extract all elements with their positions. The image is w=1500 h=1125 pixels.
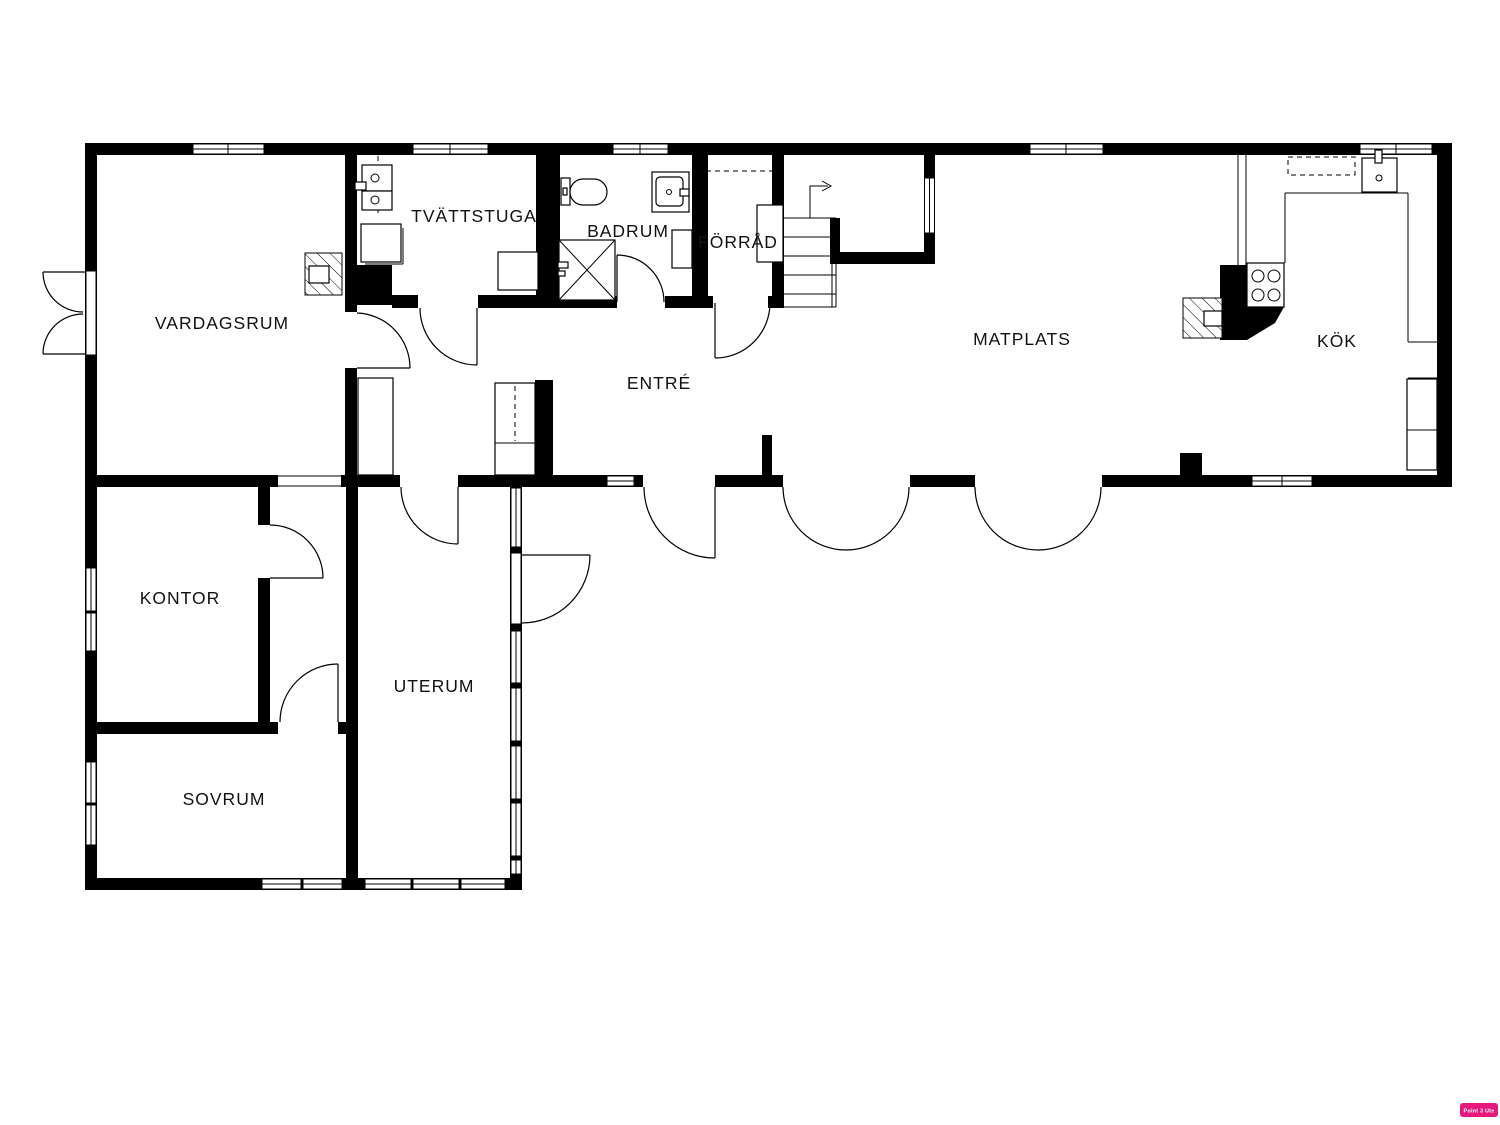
hall-closet xyxy=(495,383,535,475)
wall-openings xyxy=(258,295,1102,734)
kitchen-chimney-hatch xyxy=(1183,298,1222,338)
door-back xyxy=(644,487,715,558)
door-vardagsrum xyxy=(357,313,410,368)
room-label-forrad: FÖRRÅD xyxy=(698,232,778,252)
dishwasher xyxy=(1288,157,1355,175)
stairs-direction-arrow xyxy=(810,181,831,218)
laundry-bench xyxy=(498,252,538,290)
room-label-entre: ENTRÉ xyxy=(627,373,691,393)
kitchen-counter xyxy=(1285,193,1437,378)
door-tvattstuga xyxy=(420,308,477,365)
french-door-vardagsrum xyxy=(43,271,96,355)
door-badrum xyxy=(617,255,664,302)
door-uterum xyxy=(401,487,458,544)
kitchen-fixtures xyxy=(1183,150,1437,470)
laundry-tap xyxy=(355,182,366,190)
fridge xyxy=(1407,379,1437,470)
room-label-uterum: UTERUM xyxy=(394,676,475,696)
door-uterum-exterior xyxy=(511,553,590,624)
room-label-tvattstuga: TVÄTTSTUGA xyxy=(411,206,537,226)
floorplan-drawing: VARDAGSRUM TVÄTTSTUGA BADRUM FÖRRÅD MATP… xyxy=(0,0,1500,1125)
kitchen-sink xyxy=(1362,150,1397,192)
watermark-badge-text: Point 3 Ute xyxy=(1464,1109,1495,1115)
bathroom-cabinet xyxy=(672,230,692,268)
shower xyxy=(558,240,615,300)
stairs xyxy=(784,181,836,307)
room-label-vardagsrum: VARDAGSRUM xyxy=(155,313,289,333)
dryer xyxy=(362,191,392,210)
room-label-sovrum: SOVRUM xyxy=(183,789,266,809)
floorplan-page: VARDAGSRUM TVÄTTSTUGA BADRUM FÖRRÅD MATP… xyxy=(0,0,1500,1125)
fireplace xyxy=(305,253,342,295)
bathroom-sink xyxy=(652,172,689,212)
door-sovrum xyxy=(280,664,338,722)
laundry-appliance xyxy=(361,224,403,264)
toilet xyxy=(561,178,607,205)
double-door-a xyxy=(783,487,909,550)
watermark-badge: Point 3 Ute xyxy=(1460,1103,1498,1117)
room-label-badrum: BADRUM xyxy=(587,221,669,241)
room-label-kontor: KONTOR xyxy=(140,588,221,608)
door-kontor xyxy=(270,525,323,578)
stove xyxy=(1247,263,1284,307)
door-forrad xyxy=(715,303,770,358)
hall-wardrobe xyxy=(358,378,393,475)
double-door-b xyxy=(975,487,1101,550)
room-label-matplats: MATPLATS xyxy=(973,329,1071,349)
room-label-kok: KÖK xyxy=(1317,331,1357,351)
